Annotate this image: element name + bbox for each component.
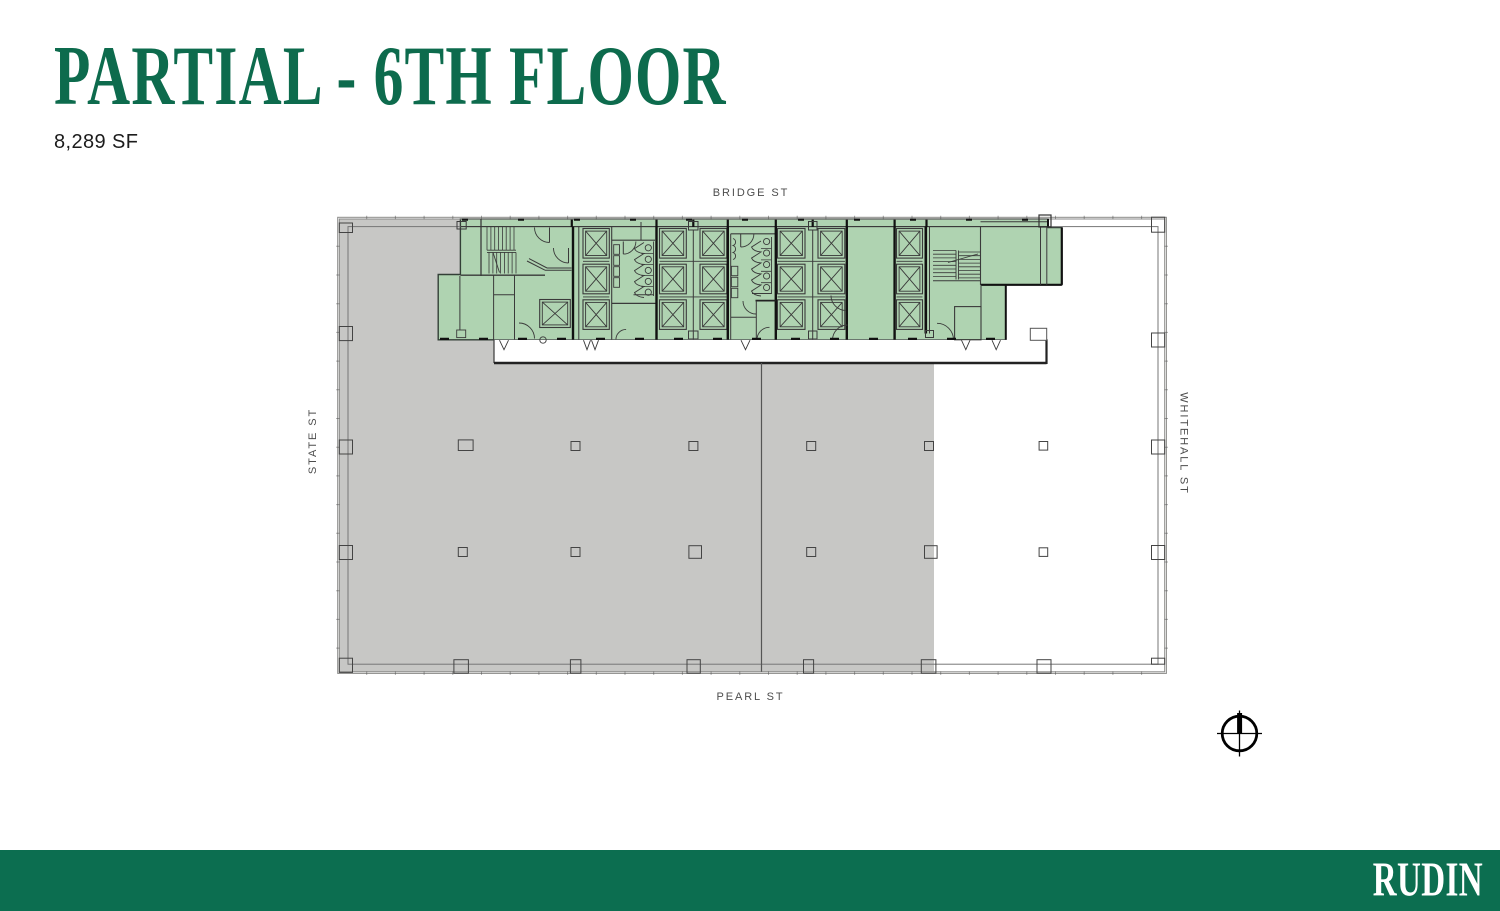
svg-text:BRIDGE ST: BRIDGE ST (713, 187, 789, 199)
svg-text:PEARL ST: PEARL ST (717, 691, 785, 703)
svg-text:WHITEHALL ST: WHITEHALL ST (1178, 392, 1190, 494)
svg-text:STATE ST: STATE ST (307, 408, 319, 474)
